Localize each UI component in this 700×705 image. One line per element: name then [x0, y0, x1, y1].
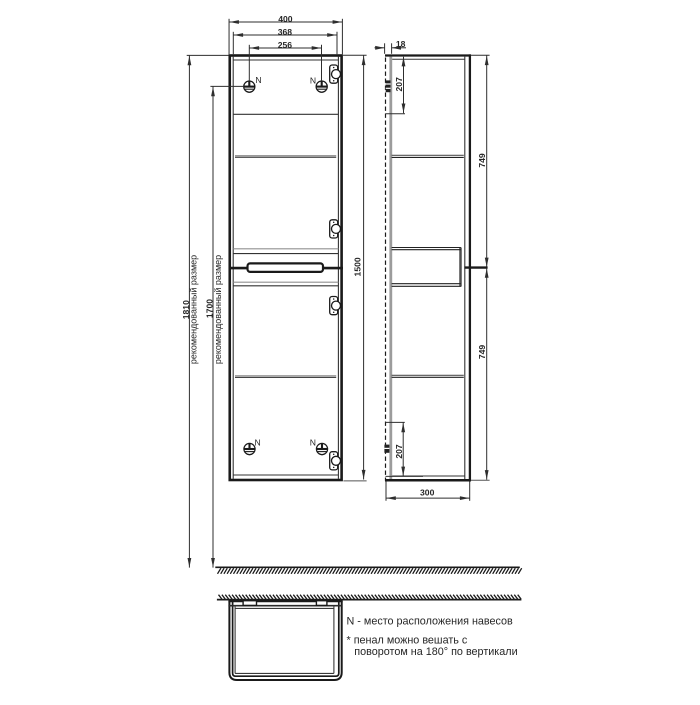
svg-text:749: 749: [477, 345, 487, 360]
svg-text:N: N: [255, 75, 261, 85]
svg-text:368: 368: [278, 27, 293, 37]
svg-text:N - место расположения навесов: N - место расположения навесов: [347, 615, 514, 627]
svg-text:400: 400: [278, 14, 293, 24]
svg-text:256: 256: [278, 40, 293, 50]
svg-text:300: 300: [420, 488, 435, 498]
svg-text:поворотом на 180° по вертикали: поворотом на 180° по вертикали: [354, 646, 517, 658]
svg-text:рекомендованный размер: рекомендованный размер: [213, 255, 223, 364]
svg-text:* пенал можно вешать с: * пенал можно вешать с: [347, 635, 468, 647]
svg-text:207: 207: [394, 77, 404, 92]
svg-text:N: N: [255, 437, 261, 447]
svg-text:749: 749: [477, 153, 487, 168]
svg-text:N: N: [310, 75, 316, 85]
svg-text:N: N: [310, 437, 316, 447]
svg-text:рекомендованный размер: рекомендованный размер: [189, 255, 199, 364]
svg-text:18: 18: [396, 39, 406, 49]
svg-text:207: 207: [394, 444, 404, 459]
svg-text:1500: 1500: [353, 257, 363, 276]
